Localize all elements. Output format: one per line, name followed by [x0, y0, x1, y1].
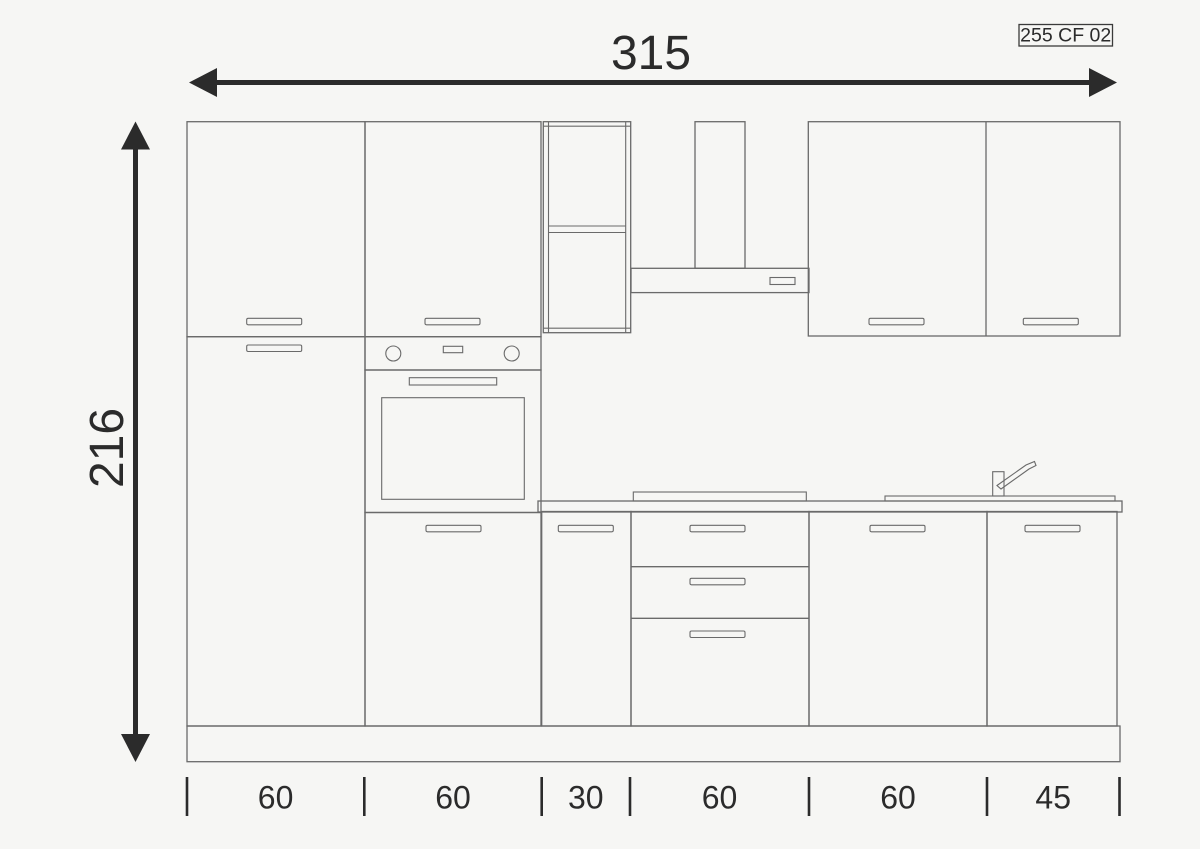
handle-icon: [690, 525, 745, 532]
handle-icon: [690, 631, 745, 638]
sink-rim: [885, 496, 1115, 501]
handle-icon: [426, 525, 481, 532]
wall-cabinets: [808, 122, 1120, 336]
handle-icon: [869, 318, 924, 325]
segment-label: 60: [880, 780, 916, 816]
drawing-code-label: 255 CF 02: [1020, 25, 1111, 47]
oven-display-icon: [443, 346, 462, 352]
segment-label: 30: [568, 780, 604, 816]
hood-canopy: [631, 268, 809, 292]
oven-control-panel: [365, 337, 541, 370]
handle-icon: [1025, 525, 1080, 532]
worktop: [538, 462, 1122, 513]
tall-cabinet-upper-door: [187, 122, 365, 337]
open-shelf-unit: [543, 122, 630, 333]
width-arrowhead-left-icon: [189, 68, 217, 97]
height-arrowhead-bottom-icon: [121, 734, 150, 762]
oven-knob-icon: [504, 346, 519, 361]
plinth: [187, 726, 1120, 762]
oven-column-upper-door: [365, 122, 541, 337]
height-arrowhead-top-icon: [121, 122, 150, 150]
extractor-hood: [631, 122, 809, 293]
oven-front: [365, 370, 541, 513]
base-cabinets: [187, 512, 1120, 762]
hood-control-icon: [770, 278, 795, 285]
faucet-body-icon: [993, 472, 1004, 496]
handle-icon: [247, 345, 302, 352]
wall-cabinet-block: [808, 122, 1120, 336]
faucet-spout-icon: [997, 462, 1036, 490]
kitchen-units: [187, 122, 1122, 762]
drawing-code: 255 CF 02: [1019, 25, 1113, 47]
base-cabinet-30-door: [542, 512, 631, 727]
oven-window: [382, 398, 525, 500]
drawing-svg: 315 255 CF 02 216: [0, 0, 1200, 849]
oven-knob-icon: [386, 346, 401, 361]
countertop: [538, 501, 1122, 512]
width-arrowhead-right-icon: [1089, 68, 1117, 97]
width-dimension-label: 315: [611, 27, 691, 80]
hob-icon: [633, 492, 806, 501]
segment-label: 60: [258, 780, 294, 816]
segment-label: 60: [702, 780, 738, 816]
handle-icon: [558, 525, 613, 532]
sink-cabinet-door: [987, 512, 1117, 727]
width-dimension: 315: [189, 27, 1117, 97]
handle-icon: [1023, 318, 1078, 325]
handle-icon: [247, 318, 302, 325]
oven-column: [365, 122, 541, 726]
oven-column-lower-door: [365, 513, 541, 727]
handle-icon: [425, 318, 480, 325]
tall-cabinet: [187, 122, 365, 726]
hood-chimney: [695, 122, 745, 269]
handle-icon: [690, 578, 745, 585]
tall-cabinet-lower-door: [187, 337, 365, 726]
height-dimension: 216: [81, 122, 150, 763]
segment-label: 45: [1035, 780, 1071, 816]
open-shelf-frame: [543, 122, 630, 333]
oven-handle-bar: [409, 378, 496, 385]
height-dimension-label: 216: [81, 408, 134, 488]
segment-label: 60: [435, 780, 471, 816]
handle-icon: [870, 525, 925, 532]
segment-dimensions: 60 60 30 60 60 45: [187, 777, 1120, 816]
base-cabinet-60-door: [809, 512, 987, 727]
kitchen-elevation-drawing: 315 255 CF 02 216: [0, 0, 1200, 849]
